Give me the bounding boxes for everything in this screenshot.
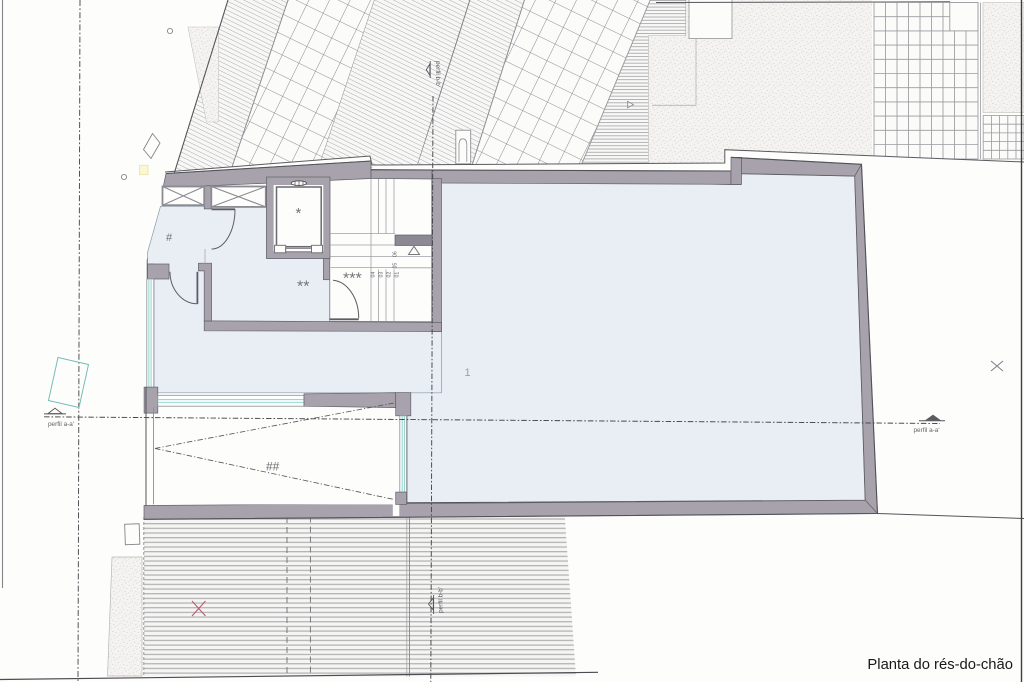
svg-text:03: 03 [379, 272, 385, 278]
svg-text:1: 1 [465, 367, 471, 379]
svg-text:#: # [166, 232, 173, 244]
svg-text:02: 02 [387, 272, 393, 278]
svg-text:**: ** [297, 279, 309, 296]
svg-text:05: 05 [393, 263, 399, 269]
svg-text:01: 01 [395, 272, 401, 278]
svg-text:perfil b-b': perfil b-b' [438, 587, 445, 613]
svg-text:06: 06 [393, 251, 399, 257]
svg-text:04: 04 [371, 272, 377, 278]
svg-text:perfil b-b': perfil b-b' [434, 61, 441, 87]
svg-text:Planta do rés-do-chão: Planta do rés-do-chão [867, 657, 1013, 673]
svg-text:perfil a-a': perfil a-a' [914, 427, 940, 434]
svg-text:***: *** [343, 271, 362, 288]
svg-text:perfil a-a': perfil a-a' [48, 421, 74, 428]
svg-text:*: * [296, 205, 302, 222]
svg-text:##: ## [266, 460, 280, 474]
